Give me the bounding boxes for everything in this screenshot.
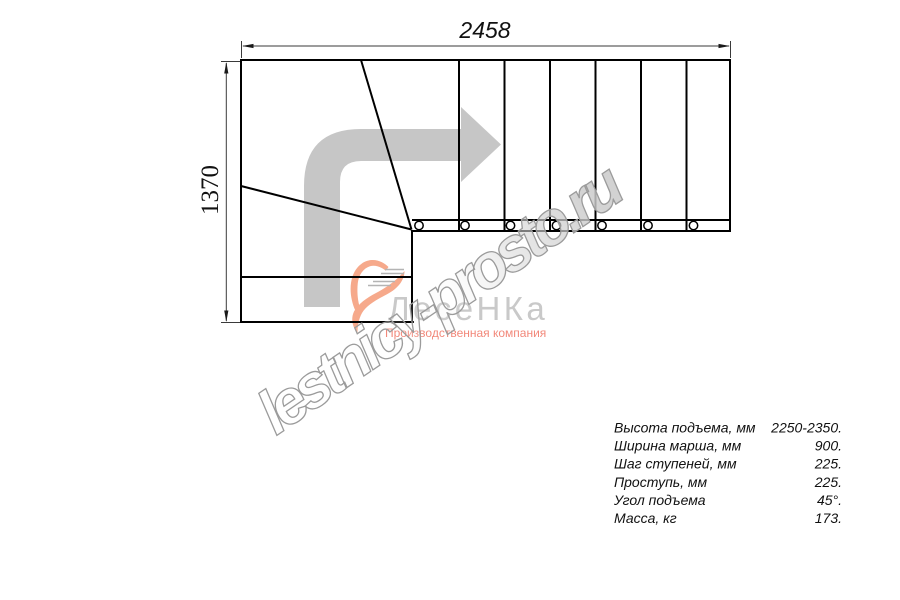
svg-text:225.: 225. <box>814 456 842 472</box>
svg-text:Масса, кг: Масса, кг <box>614 510 677 526</box>
svg-text:2458: 2458 <box>458 17 510 43</box>
svg-text:1370: 1370 <box>197 165 224 215</box>
svg-text:Высота подъема, мм: Высота подъема, мм <box>614 420 756 436</box>
svg-text:45°.: 45°. <box>817 492 842 508</box>
svg-text:Проступь, мм: Проступь, мм <box>614 474 708 490</box>
svg-text:2250-2350.: 2250-2350. <box>770 420 842 436</box>
svg-text:lestnicy-prosto.ru: lestnicy-prosto.ru <box>245 151 636 448</box>
svg-text:225.: 225. <box>814 474 842 490</box>
svg-text:Угол подъема: Угол подъема <box>613 492 706 508</box>
svg-text:173.: 173. <box>815 510 842 526</box>
svg-text:900.: 900. <box>815 438 842 454</box>
svg-text:Шаг ступеней, мм: Шаг ступеней, мм <box>614 456 737 472</box>
svg-text:Ширина марша, мм: Ширина марша, мм <box>614 438 742 454</box>
